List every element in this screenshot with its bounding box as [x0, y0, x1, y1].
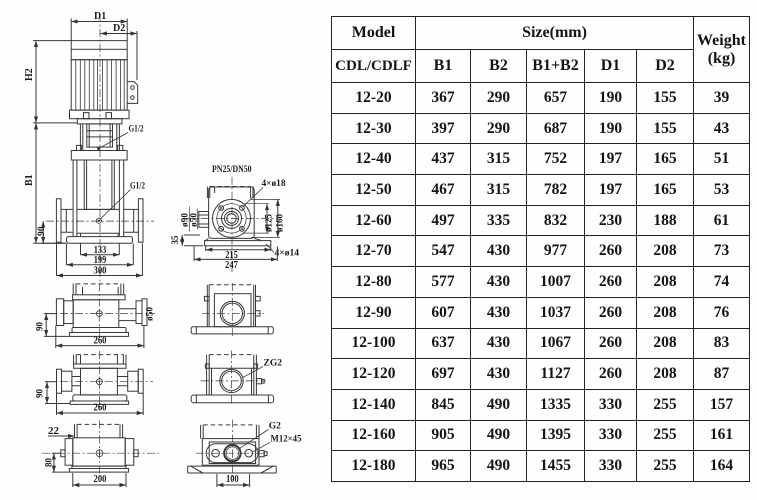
svg-text:ø50: ø50 [189, 212, 199, 227]
svg-text:80: 80 [43, 458, 53, 468]
svg-text:4×ø18: 4×ø18 [262, 179, 286, 189]
svg-text:100: 100 [226, 473, 239, 485]
svg-text:22: 22 [48, 425, 60, 437]
svg-text:G2: G2 [269, 422, 281, 432]
svg-text:247: 247 [225, 259, 238, 271]
svg-text:35: 35 [170, 235, 180, 245]
svg-text:200: 200 [94, 473, 107, 485]
svg-text:90: 90 [34, 322, 44, 332]
svg-text:ZG2: ZG2 [264, 359, 283, 369]
svg-text:90: 90 [34, 389, 44, 399]
svg-text:M12×45: M12×45 [271, 435, 302, 445]
svg-text:260: 260 [94, 334, 107, 346]
svg-text:ø160: ø160 [275, 214, 285, 233]
svg-text:PN25/DN50: PN25/DN50 [212, 165, 252, 175]
svg-text:ø50: ø50 [144, 306, 154, 321]
svg-text:ø125: ø125 [264, 214, 274, 233]
svg-text:260: 260 [94, 402, 107, 414]
svg-text:4×ø14: 4×ø14 [275, 249, 300, 259]
